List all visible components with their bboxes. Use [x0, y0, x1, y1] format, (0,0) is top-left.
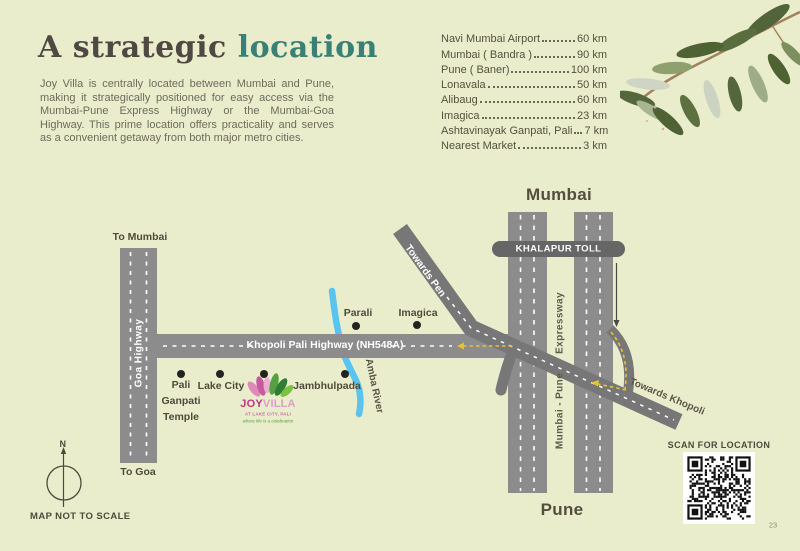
- distance-label: Nearest Market: [441, 140, 516, 153]
- distance-row: Imagica23 km: [441, 107, 607, 122]
- dot-leader: [518, 147, 581, 149]
- marker-label-lake-city: Lake City: [198, 380, 245, 392]
- dot-leader: [482, 117, 576, 119]
- page-title-dark: A strategic: [38, 30, 227, 65]
- joy-villa-flower-icon: [245, 372, 295, 399]
- road-label-goa-highway: Goa Highway: [134, 319, 145, 388]
- distance-label: Imagica: [441, 110, 480, 123]
- down-arrow-head: [614, 320, 620, 327]
- distance-value: 100 km: [571, 64, 607, 77]
- distance-label: Ashtavinayak Ganpati, Pali: [441, 125, 572, 138]
- road-label-khopoli-highway: Khopoli Pali Highway (NH548A): [247, 339, 404, 351]
- logo-villa: VILLA: [263, 398, 296, 410]
- toll-label-khalapur: KHALAPUR TOLL: [516, 244, 602, 255]
- compass-north-label: N: [60, 439, 67, 449]
- road-label-expressway: Expressway: [555, 292, 566, 354]
- marker-label-imagica: Imagica: [398, 307, 437, 319]
- distance-row: Navi Mumbai Airport60 km: [441, 31, 607, 46]
- road-label-mumbai-pune: Mumbai - Pune: [555, 373, 566, 449]
- map-disclaimer: MAP NOT TO SCALE: [30, 511, 131, 522]
- distance-row: Mumbai ( Bandra )90 km: [441, 46, 607, 61]
- city-label-pune: Pune: [541, 500, 584, 520]
- marker-dot-joy-villa: [260, 370, 268, 378]
- distance-list: Navi Mumbai Airport60 km Mumbai ( Bandra…: [441, 31, 607, 153]
- page-number: 23: [769, 521, 777, 530]
- logo-tagline-2: where life is a celebration: [243, 419, 294, 424]
- qr-caption: SCAN FOR LOCATION: [668, 440, 771, 450]
- distance-label: Mumbai ( Bandra ): [441, 49, 532, 62]
- marker-label-pali-ganpati-temple: Pali Ganpati Temple: [161, 377, 200, 425]
- distance-value: 3 km: [583, 140, 607, 153]
- page-title: A strategic location: [38, 30, 378, 65]
- compass-icon: [47, 447, 81, 507]
- marker-dot-lake-city: [216, 370, 224, 378]
- distance-row: Ashtavinayak Ganpati, Pali7 km: [441, 123, 607, 138]
- qr-code: [683, 452, 755, 524]
- distance-value: 7 km: [584, 125, 608, 138]
- dot-leader: [511, 71, 568, 73]
- logo-joy: JOY: [240, 398, 263, 410]
- intro-paragraph: Joy Villa is centrally located between M…: [40, 78, 334, 146]
- distance-label: Navi Mumbai Airport: [441, 33, 540, 46]
- distance-value: 90 km: [577, 49, 607, 62]
- marker-label-parali: Parali: [344, 307, 373, 319]
- dot-leader: [574, 132, 582, 134]
- marker-label-jambhulpada: Jambhulpada: [293, 380, 361, 392]
- olive-branch-illustration: [620, 0, 800, 165]
- distance-label: Pune ( Baner): [441, 64, 509, 77]
- distance-row: Alibaug60 km: [441, 92, 607, 107]
- distance-label: Alibaug: [441, 94, 478, 107]
- distance-value: 50 km: [577, 79, 607, 92]
- dot-leader: [480, 101, 575, 103]
- road-label-to-mumbai: To Mumbai: [113, 231, 168, 243]
- distance-value: 60 km: [577, 33, 607, 46]
- road-label-to-goa: To Goa: [120, 466, 155, 478]
- marker-dot-parali: [352, 322, 360, 330]
- dot-leader: [488, 86, 575, 88]
- dot-leader: [534, 56, 575, 58]
- page-title-accent: location: [238, 30, 378, 65]
- distance-row: Lonavala50 km: [441, 77, 607, 92]
- distance-value: 23 km: [577, 110, 607, 123]
- joy-villa-logo-text: JOYVILLA: [240, 398, 295, 410]
- marker-dot-imagica: [413, 321, 421, 329]
- marker-dot-jambhulpada: [341, 370, 349, 378]
- distance-row: Pune ( Baner)100 km: [441, 62, 607, 77]
- distance-value: 60 km: [577, 94, 607, 107]
- distance-row: Nearest Market3 km: [441, 138, 607, 153]
- distance-label: Lonavala: [441, 79, 486, 92]
- logo-tagline-1: AT LAKE CITY, PALI: [245, 412, 291, 417]
- city-label-mumbai: Mumbai: [526, 185, 592, 205]
- dot-leader: [542, 40, 575, 42]
